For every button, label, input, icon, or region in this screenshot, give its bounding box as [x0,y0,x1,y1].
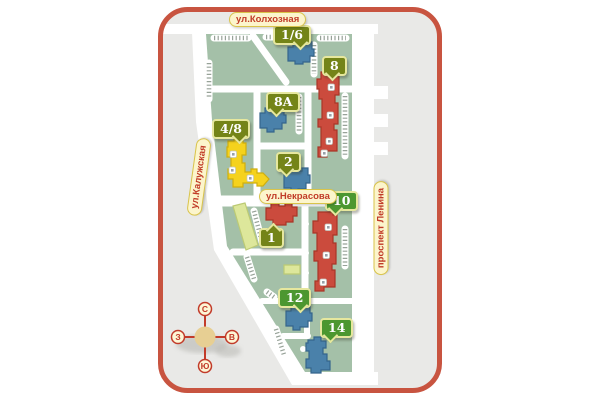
road-pocket [374,86,388,99]
compass-south-label: Ю [201,361,210,371]
road-bottom [292,372,378,385]
compass-west-label: З [175,332,180,342]
building-badge-8a[interactable]: 8A [266,92,300,112]
building-unlabeled-small [284,265,300,274]
compass-east-label: В [229,332,235,342]
building-badge-8[interactable]: 8 [322,56,347,76]
building-badge-1[interactable]: 1 [259,228,284,248]
road-pocket [374,114,388,127]
road-pocket [374,142,388,155]
compass-center [195,327,216,348]
residential-complex-map: С В Ю З ул.Колхозная ул.Калужская ул.Нек… [0,0,600,400]
building-badge-12[interactable]: 12 [278,288,311,308]
street-label-kolkhoznaya: ул.Колхозная [229,12,306,27]
building-14[interactable] [306,337,330,373]
street-label-nekrasova: ул.Некрасова [259,189,337,204]
building-badge-4-8[interactable]: 4/8 [212,119,250,139]
building-badge-14[interactable]: 14 [320,318,353,338]
building-badge-2[interactable]: 2 [276,152,301,172]
street-label-lenina: проспект Ленина [374,181,389,275]
building-badge-1-6[interactable]: 1/6 [273,25,311,45]
compass-north-label: С [202,304,208,314]
